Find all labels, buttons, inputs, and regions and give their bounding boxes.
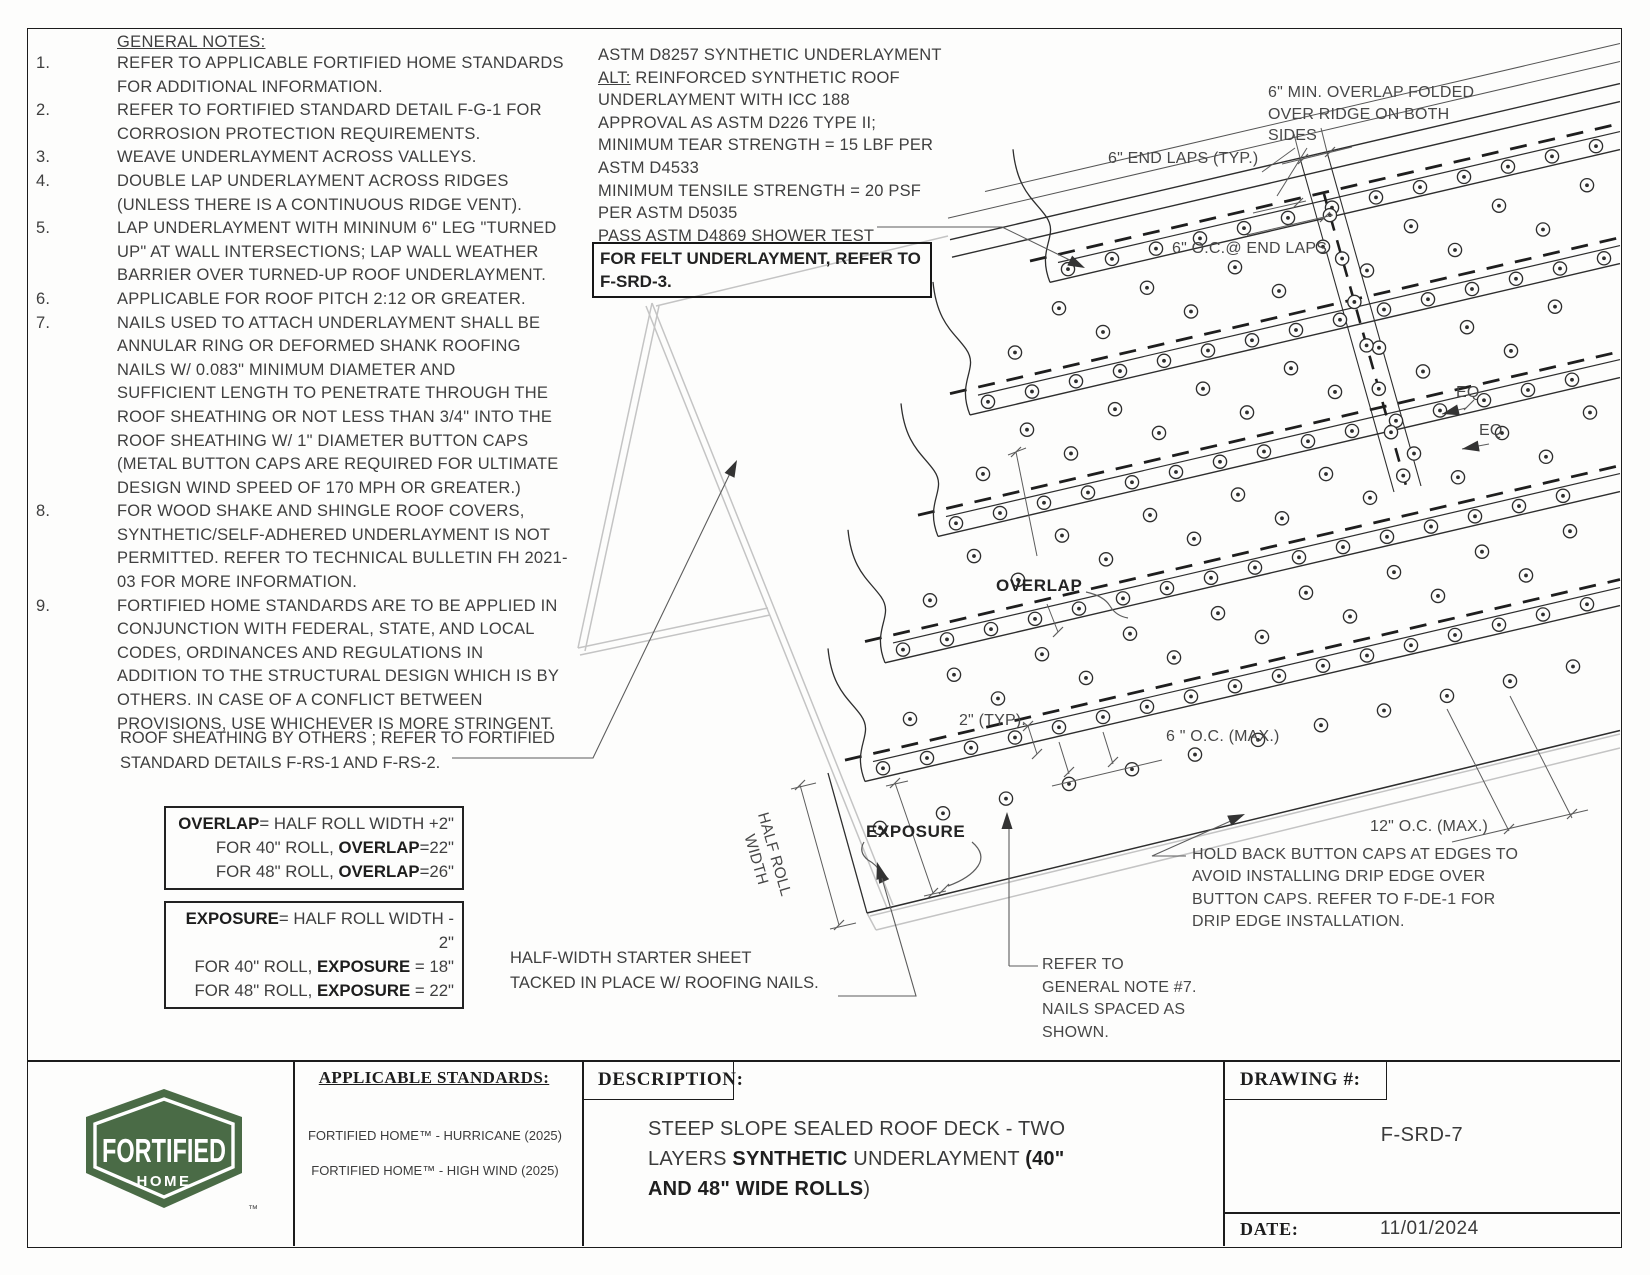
drawing-number-label: DRAWING #: bbox=[1240, 1069, 1361, 1091]
logo-fortified-text: FORTIFIED bbox=[102, 1132, 226, 1169]
note-text: DOUBLE LAP UNDERLAYMENT ACROSS RIDGES (U… bbox=[117, 170, 522, 217]
note-text: REFER TO APPLICABLE FORTIFIED HOME STAND… bbox=[117, 52, 564, 99]
note-number: 3. bbox=[36, 146, 117, 170]
starter-sheet-note: HALF-WIDTH STARTER SHEET TACKED IN PLACE… bbox=[510, 946, 819, 996]
note-text: LAP UNDERLAYMENT WITH MININUM 6" LEG "TU… bbox=[117, 217, 556, 288]
general-note-item: 9.FORTIFIED HOME STANDARDS ARE TO BE APP… bbox=[36, 595, 581, 737]
standard-item-highwind: FORTIFIED HOME™ - HIGH WIND (2025) bbox=[294, 1163, 576, 1178]
eq-label-2: EQ bbox=[1479, 420, 1503, 442]
note-number: 7. bbox=[36, 312, 117, 501]
general-note-item: 7.NAILS USED TO ATTACH UNDERLAYMENT SHAL… bbox=[36, 312, 581, 501]
date-label: DATE: bbox=[1240, 1219, 1299, 1240]
titleblock-divider-1 bbox=[293, 1060, 295, 1246]
note-text: WEAVE UNDERLAYMENT ACROSS VALLEYS. bbox=[117, 146, 477, 170]
drawing-sheet: GENERAL NOTES: 1.REFER TO APPLICABLE FOR… bbox=[0, 0, 1650, 1275]
astm-alt-line: ALT: REINFORCED SYNTHETIC ROOF bbox=[598, 67, 942, 90]
eq-label-1: EQ bbox=[1456, 382, 1480, 404]
overlap-dimension-label: OVERLAP bbox=[996, 576, 1082, 596]
exposure-formula-box: EXPOSURE= HALF ROLL WIDTH - 2" FOR 40" R… bbox=[164, 901, 464, 1009]
description-label: DESCRIPTION: bbox=[598, 1069, 744, 1091]
general-note-item: 4.DOUBLE LAP UNDERLAYMENT ACROSS RIDGES … bbox=[36, 170, 581, 217]
note-number: 6. bbox=[36, 288, 117, 312]
overlap-formula-box: OVERLAP= HALF ROLL WIDTH +2" FOR 40" ROL… bbox=[164, 806, 464, 890]
drawing-number-value: F-SRD-7 bbox=[1224, 1124, 1620, 1147]
nails-note7-annotation: REFER TO GENERAL NOTE #7. NAILS SPACED A… bbox=[1042, 954, 1197, 1044]
twelve-oc-max-annotation: 12" O.C. (MAX.) bbox=[1366, 816, 1488, 838]
felt-underlayment-note-box: FOR FELT UNDERLAYMENT, REFER TO F-SRD-3. bbox=[592, 242, 932, 298]
general-note-item: 8.FOR WOOD SHAKE AND SHINGLE ROOF COVERS… bbox=[36, 500, 581, 594]
ridge-overlap-annotation: 6" MIN. OVERLAP FOLDED OVER RIDGE ON BOT… bbox=[1268, 82, 1508, 147]
date-value: 11/01/2024 bbox=[1380, 1218, 1479, 1240]
note-text: FORTIFIED HOME STANDARDS ARE TO BE APPLI… bbox=[117, 595, 559, 737]
logo-home-text: HOME bbox=[137, 1173, 192, 1190]
six-oc-max-annotation: 6 " O.C. (MAX.) bbox=[1166, 726, 1280, 748]
general-notes-list: 1.REFER TO APPLICABLE FORTIFIED HOME STA… bbox=[36, 52, 581, 736]
general-note-item: 6.APPLICABLE FOR ROOF PITCH 2:12 OR GREA… bbox=[36, 288, 581, 312]
general-note-item: 3.WEAVE UNDERLAYMENT ACROSS VALLEYS. bbox=[36, 146, 581, 170]
fortified-home-logo: FORTIFIED HOME ™ bbox=[78, 1086, 262, 1216]
oc-end-laps-annotation: 6" O.C.@ END LAPS bbox=[1172, 238, 1327, 260]
general-note-item: 5.LAP UNDERLAYMENT WITH MININUM 6" LEG "… bbox=[36, 217, 581, 288]
note-text: NAILS USED TO ATTACH UNDERLAYMENT SHALL … bbox=[117, 312, 559, 501]
astm-lines: UNDERLAYMENT WITH ICC 188 APPROVAL AS AS… bbox=[598, 89, 942, 247]
two-inch-typ-annotation: 2" (TYP). bbox=[946, 710, 1026, 732]
date-row-line bbox=[1223, 1212, 1620, 1214]
note-number: 5. bbox=[36, 217, 117, 288]
hold-back-annotation: HOLD BACK BUTTON CAPS AT EDGES TO AVOID … bbox=[1192, 844, 1518, 934]
note-number: 2. bbox=[36, 99, 117, 146]
note-number: 8. bbox=[36, 500, 117, 594]
exposure-dimension-label: EXPOSURE bbox=[866, 822, 965, 842]
end-laps-annotation: 6" END LAPS (TYP.) bbox=[1108, 148, 1258, 170]
general-note-item: 1.REFER TO APPLICABLE FORTIFIED HOME STA… bbox=[36, 52, 581, 99]
description-text: STEEP SLOPE SEALED ROOF DECK - TWO LAYER… bbox=[648, 1114, 1128, 1204]
general-note-item: 2.REFER TO FORTIFIED STANDARD DETAIL F-G… bbox=[36, 99, 581, 146]
logo-trademark: ™ bbox=[248, 1204, 258, 1215]
roof-sheathing-note: ROOF SHEATHING BY OTHERS ; REFER TO FORT… bbox=[120, 726, 555, 775]
note-text: FOR WOOD SHAKE AND SHINGLE ROOF COVERS, … bbox=[117, 500, 568, 594]
note-number: 4. bbox=[36, 170, 117, 217]
astm-spec-block: ASTM D8257 SYNTHETIC UNDERLAYMENT ALT: R… bbox=[598, 44, 942, 247]
note-text: APPLICABLE FOR ROOF PITCH 2:12 OR GREATE… bbox=[117, 288, 526, 312]
general-notes-heading: GENERAL NOTES: bbox=[117, 33, 265, 52]
applicable-standards-heading: APPLICABLE STANDARDS: bbox=[300, 1068, 568, 1088]
note-number: 9. bbox=[36, 595, 117, 737]
note-text: REFER TO FORTIFIED STANDARD DETAIL F-G-1… bbox=[117, 99, 542, 146]
astm-line: ASTM D8257 SYNTHETIC UNDERLAYMENT bbox=[598, 44, 942, 67]
note-number: 1. bbox=[36, 52, 117, 99]
standard-item-hurricane: FORTIFIED HOME™ - HURRICANE (2025) bbox=[294, 1128, 576, 1143]
